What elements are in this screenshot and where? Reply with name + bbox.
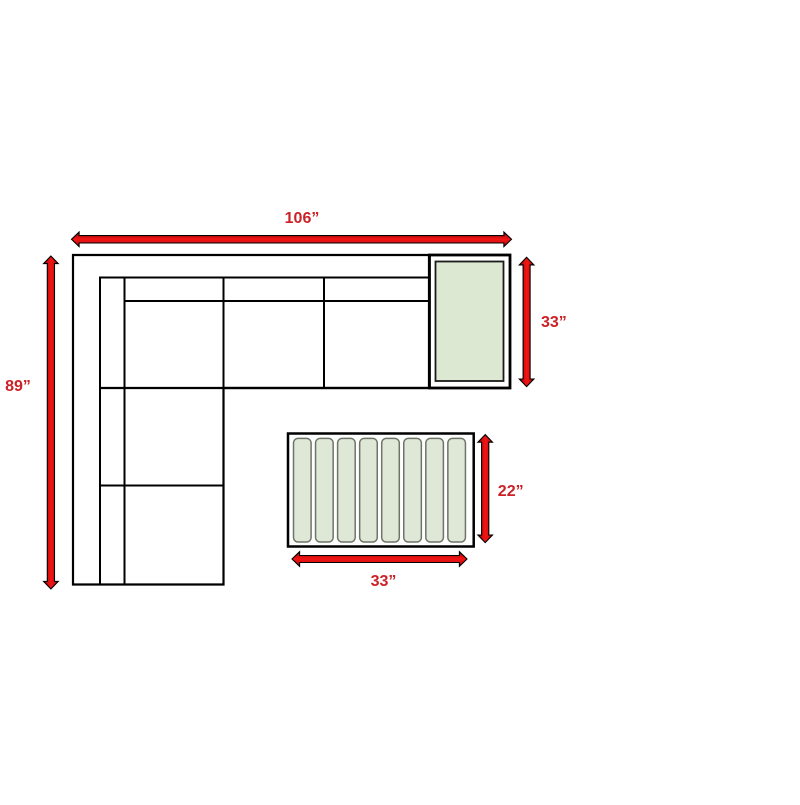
svg-text:33”: 33” [541,314,567,331]
svg-text:22”: 22” [498,483,524,500]
svg-text:33”: 33” [371,573,397,590]
svg-text:106”: 106” [285,210,320,227]
svg-text:89”: 89” [5,378,31,395]
